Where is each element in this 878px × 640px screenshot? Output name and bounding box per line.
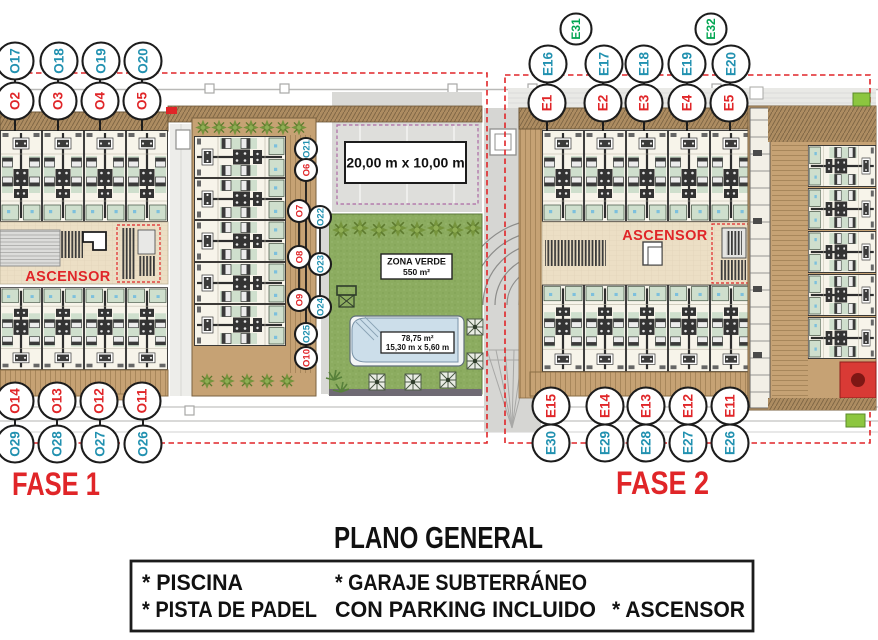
svg-text:ASCENSOR: ASCENSOR bbox=[622, 228, 708, 244]
svg-text:15,30 m x 5,60 m: 15,30 m x 5,60 m bbox=[386, 343, 449, 352]
svg-text:E29: E29 bbox=[598, 431, 613, 455]
svg-text:E11: E11 bbox=[723, 394, 738, 418]
svg-text:O8: O8 bbox=[294, 251, 305, 264]
svg-text:E17: E17 bbox=[597, 52, 612, 76]
svg-text:E5: E5 bbox=[722, 94, 737, 111]
svg-text:ZONA VERDE: ZONA VERDE bbox=[387, 257, 446, 267]
svg-text:FASE 1: FASE 1 bbox=[12, 466, 100, 502]
svg-text:O29: O29 bbox=[8, 431, 23, 457]
svg-text:550 m²: 550 m² bbox=[403, 267, 430, 277]
svg-text:O24: O24 bbox=[315, 297, 326, 316]
svg-text:* ASCENSOR: * ASCENSOR bbox=[612, 597, 745, 622]
svg-text:CON PARKING INCLUIDO: CON PARKING INCLUIDO bbox=[335, 597, 596, 622]
svg-text:E3: E3 bbox=[637, 94, 652, 111]
svg-text:E14: E14 bbox=[598, 394, 613, 419]
svg-text:O18: O18 bbox=[52, 48, 67, 74]
svg-text:* PISTA DE PADEL: * PISTA DE PADEL bbox=[142, 597, 317, 622]
svg-text:E30: E30 bbox=[544, 431, 559, 455]
svg-text:E4: E4 bbox=[680, 94, 695, 111]
svg-text:E28: E28 bbox=[639, 431, 654, 456]
svg-text:O17: O17 bbox=[8, 48, 23, 74]
svg-text:O9: O9 bbox=[294, 294, 305, 307]
svg-text:78,75 m²: 78,75 m² bbox=[401, 334, 433, 343]
svg-text:E1: E1 bbox=[540, 94, 555, 111]
svg-text:E13: E13 bbox=[639, 394, 654, 419]
svg-text:E2: E2 bbox=[596, 95, 611, 112]
svg-text:O3: O3 bbox=[51, 92, 66, 111]
svg-text:O21: O21 bbox=[301, 139, 312, 158]
svg-text:E26: E26 bbox=[723, 431, 738, 456]
svg-text:FASE 2: FASE 2 bbox=[616, 465, 709, 501]
svg-text:O19: O19 bbox=[94, 48, 109, 74]
svg-text:E12: E12 bbox=[681, 394, 696, 418]
svg-text:E19: E19 bbox=[680, 52, 695, 76]
svg-text:O20: O20 bbox=[136, 48, 151, 74]
svg-text:E32: E32 bbox=[704, 18, 718, 40]
svg-text:O13: O13 bbox=[50, 388, 65, 414]
svg-text:O26: O26 bbox=[136, 431, 151, 457]
svg-text:O22: O22 bbox=[315, 208, 326, 226]
svg-text:E15: E15 bbox=[544, 394, 559, 419]
svg-text:20,00 m x 10,00 m: 20,00 m x 10,00 m bbox=[346, 155, 464, 171]
svg-text:E20: E20 bbox=[724, 52, 739, 76]
svg-text:O4: O4 bbox=[93, 92, 108, 111]
svg-text:O7: O7 bbox=[294, 205, 305, 218]
svg-text:O25: O25 bbox=[301, 324, 312, 343]
svg-text:O14: O14 bbox=[8, 388, 23, 414]
svg-text:E31: E31 bbox=[569, 18, 583, 40]
svg-text:PLANO GENERAL: PLANO GENERAL bbox=[334, 520, 543, 555]
svg-text:O2: O2 bbox=[8, 92, 23, 110]
svg-text:* PISCINA: * PISCINA bbox=[142, 570, 243, 595]
svg-text:ASCENSOR: ASCENSOR bbox=[25, 269, 111, 285]
svg-text:O27: O27 bbox=[93, 431, 108, 457]
svg-text:E18: E18 bbox=[637, 52, 652, 77]
svg-text:E16: E16 bbox=[541, 52, 556, 77]
svg-text:E27: E27 bbox=[681, 431, 696, 455]
svg-text:O12: O12 bbox=[92, 388, 107, 414]
svg-text:* GARAJE SUBTERRÁNEO: * GARAJE SUBTERRÁNEO bbox=[335, 570, 587, 595]
svg-text:O28: O28 bbox=[50, 431, 65, 457]
svg-text:O5: O5 bbox=[135, 92, 150, 111]
svg-text:O11: O11 bbox=[135, 388, 150, 413]
svg-text:O23: O23 bbox=[315, 255, 326, 273]
svg-text:O6: O6 bbox=[301, 164, 312, 177]
svg-text:O10: O10 bbox=[301, 349, 312, 367]
